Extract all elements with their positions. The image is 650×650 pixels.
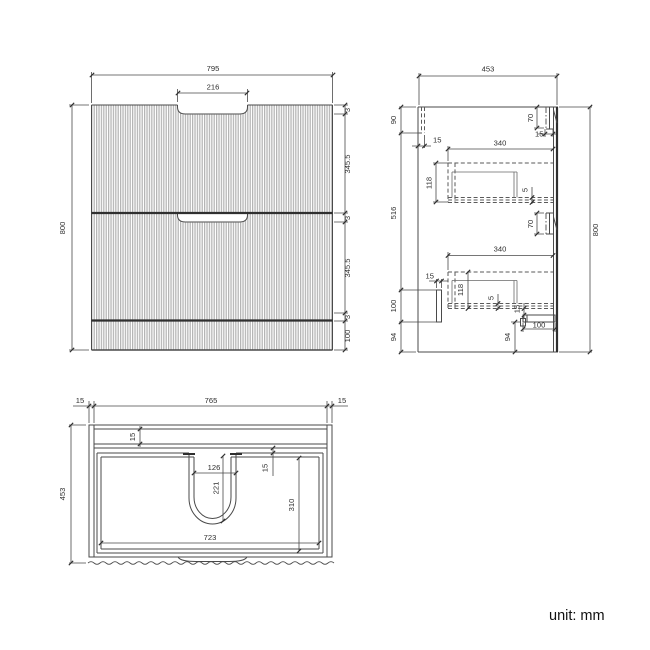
side-depth-dim-lines [419, 73, 557, 105]
side-drawer1-box [448, 163, 553, 203]
side-bottom-back-rail [437, 290, 442, 322]
vanity-dimension-drawing: 795 216 800 3 345.5 3 345.5 3 100 [0, 0, 650, 650]
dim-side-base-height: 94 [389, 333, 398, 341]
dim-front-plinth: 100 [343, 330, 352, 343]
dim-plan-side-left: 15 [76, 396, 84, 405]
dim-side-handle2-height: 70 [526, 220, 535, 228]
dim-side-drawer1-length: 340 [494, 139, 507, 148]
handle-cutout-1 [178, 104, 248, 115]
dim-side-drawer2-inner-height: 118 [456, 284, 465, 296]
dim-plan-cutout-depth: 221 [212, 482, 221, 495]
dim-side-runner-length: 100 [533, 321, 546, 330]
plan-dim-ticks [69, 404, 334, 565]
dim-front-handle-width: 216 [207, 83, 220, 92]
dim-plan-drawer-depth: 310 [287, 499, 296, 512]
dim-plan-back-gap: 15 [261, 464, 270, 472]
dim-plan-depth: 453 [58, 488, 67, 501]
side-dim-ticks [399, 74, 592, 354]
dim-front-drawer1-height: 345.5 [343, 154, 352, 173]
plan-fluted-edge [88, 562, 334, 565]
dim-front-height: 800 [58, 222, 67, 235]
side-view: 453 800 90 516 100 94 15 70 15 340 118 5… [389, 65, 600, 355]
side-handle2 [546, 213, 557, 234]
front-view: 795 216 800 3 345.5 3 345.5 3 100 [58, 64, 352, 352]
dim-side-mid-height: 516 [389, 207, 398, 220]
side-backrail-dim [412, 135, 431, 148]
dim-front-gap-bottom: 3 [343, 315, 352, 319]
plan-handle-notch [178, 557, 247, 562]
front-height-dim-lines [69, 105, 89, 350]
dim-front-width: 795 [207, 64, 220, 73]
dim-front-drawer2-height: 345.5 [343, 258, 352, 277]
dim-side-bottom-rail-width: 15 [426, 272, 434, 281]
technical-drawing-page: 795 216 800 3 345.5 3 345.5 3 100 [0, 0, 650, 650]
dim-side-drawer1-inner-height: 118 [425, 177, 434, 189]
dim-plan-inner-width: 765 [205, 396, 218, 405]
dim-side-drawer2-front-gap: 15 [513, 305, 522, 313]
dim-side-back-rail-height: 90 [389, 116, 398, 124]
side-drawer1-dims [433, 146, 553, 204]
fluted-face [92, 106, 332, 350]
front-right-dim-lines [334, 105, 348, 350]
dim-side-bottom-rail-height: 100 [389, 300, 398, 313]
plan-view: 15 765 15 453 15 15 126 221 310 723 [58, 396, 348, 565]
dim-side-plinth-height: 94 [503, 333, 512, 341]
dim-side-drawer2-gap: 5 [487, 296, 496, 300]
side-height-dim-lines [559, 107, 592, 352]
side-drawer1-inner [452, 172, 517, 198]
dim-plan-inner-length: 723 [204, 533, 217, 542]
unit-note: unit: mm [549, 608, 605, 624]
dim-side-handle-depth: 15 [535, 130, 543, 139]
side-back-rail [418, 107, 425, 133]
side-handle1 [546, 107, 557, 129]
dim-side-depth: 453 [482, 65, 495, 74]
dim-plan-top-rail: 15 [128, 433, 137, 441]
dim-front-gap-top: 3 [343, 108, 352, 112]
dim-front-gap-middle: 3 [343, 216, 352, 220]
dim-plan-cutout-width: 126 [208, 463, 221, 472]
side-handle2-dims [534, 213, 544, 234]
dim-side-drawer1-gap: 5 [521, 188, 530, 192]
dim-side-handle1-height: 70 [526, 114, 535, 122]
dim-side-backrail-thickness: 15 [433, 136, 441, 145]
dim-side-drawer2-length: 340 [494, 245, 507, 254]
dim-plan-side-right: 15 [338, 396, 346, 405]
plan-depth-dim-lines [69, 425, 86, 563]
dim-side-height: 800 [591, 224, 600, 237]
